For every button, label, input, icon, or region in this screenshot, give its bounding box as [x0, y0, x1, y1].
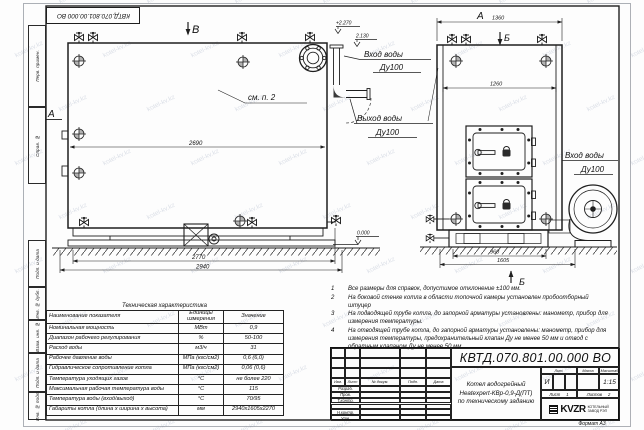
company-logo-text: KVZR [560, 404, 585, 415]
title-block-cell [360, 415, 400, 421]
lifting-point-icon [72, 54, 86, 68]
elevation-top: +2.270 [336, 21, 352, 27]
product-name-line3: по техническому заданию [458, 398, 534, 406]
valve-icon [80, 217, 89, 228]
note-item: 3На подводящей трубе котла, до запорной … [331, 311, 616, 327]
sheet-number-cell: Лист 1 [541, 390, 577, 398]
title-block-cell [426, 348, 451, 358]
doc-number-stamp-text: КВТД.070.801.00.000 ВО [57, 12, 130, 19]
title-block-cell: Лист [345, 378, 360, 386]
dim-2690: 2690 [188, 141, 203, 147]
note-item: 2На боковой стенке котла в области топоч… [331, 295, 616, 311]
inlet-label-mid: Вход воды [364, 50, 403, 59]
table-row: Номинальная мощностьМВт0,9 [47, 324, 284, 334]
table-header-row: Наименование показателяЕдиницы измерения… [47, 311, 284, 324]
table-row: Расход водым3/ч31 [47, 344, 284, 354]
lifting-point-icon [72, 166, 86, 180]
elevation-zero: 0.000 [357, 231, 370, 237]
company-name: КОТЕЛЬНЫЙ ЗАВОД РЭП [588, 406, 612, 414]
see-note-label: см. п. 2 [248, 93, 276, 102]
table-row: Температура воды (вход/выход)°С70/95 [47, 395, 284, 405]
table-cell: Диапазон рабочего регулирования [47, 334, 179, 344]
title-block-cell [331, 358, 345, 368]
title-block-cell [426, 415, 451, 421]
column-header: Наименование показателя [47, 311, 179, 324]
furnace-door-upper [466, 126, 536, 177]
company-cell: KVZR КОТЕЛЬНЫЙ ЗАВОД РЭП [541, 398, 620, 421]
inlet-label-right: Вход воды [565, 151, 604, 160]
table-row: Гидравлическое сопротивление котлаМПа (к… [47, 364, 284, 374]
furnace-door-lower [466, 179, 536, 230]
elevation-pipe: 2.130 [355, 34, 369, 40]
lifting-point-icon [539, 212, 553, 226]
title-block-cell [345, 348, 360, 358]
title-block-cell: Изм. [331, 378, 345, 386]
lifting-point-icon [449, 212, 463, 226]
note-number: 1 [331, 286, 348, 294]
table-cell: °С [179, 385, 224, 395]
table-row: Температура уходящих газов°Сне более 220 [47, 374, 284, 384]
note-number: 3 [331, 311, 348, 327]
valve-icon [462, 34, 471, 45]
section-label-b-top: Б [504, 33, 510, 43]
product-name-line1: Котел водогрейный [467, 381, 526, 389]
valve-icon [426, 215, 434, 224]
note-number: 2 [331, 295, 348, 311]
section-label-b: В [192, 24, 199, 36]
table-cell: Габариты котла (длина х ширина х высота) [47, 405, 179, 415]
table-cell: Максимальная рабочая температура воды [47, 385, 179, 395]
dim-1605: 1605 [497, 258, 510, 264]
scale-header: Масштаб [599, 367, 620, 374]
title-block-cell: Утв. [331, 415, 360, 421]
table-cell: Температура воды (вход/выход) [47, 395, 179, 405]
title-block-cell: Дата [426, 378, 451, 386]
title-block-cell [426, 358, 451, 368]
note-text: На боковой стенке котла в области топочн… [348, 295, 610, 311]
section-label-a: А [47, 109, 55, 120]
table-cell: 31 [224, 344, 284, 354]
table-cell: °С [179, 395, 224, 405]
table-cell: Номинальная мощность [47, 324, 179, 334]
table-cell: МПа (кгс/см2) [179, 364, 224, 374]
valve-icon [306, 32, 315, 43]
table-cell: Температура уходящих газов [47, 374, 179, 384]
title-block-cell: № докум. [360, 378, 400, 386]
doc-number-stamp: КВТД.070.801.00.000 ВО [46, 7, 140, 24]
spec-table-grid: Наименование показателяЕдиницы измерения… [46, 310, 284, 416]
ground-left [52, 248, 380, 256]
title-block-cell [360, 358, 400, 368]
margin-box: Справ. № [28, 107, 46, 184]
table-cell: Рабочее давление воды [47, 354, 179, 364]
format-label: Формат А3 [552, 421, 632, 427]
lit-cell-3 [565, 374, 577, 390]
table-cell: 50-100 [224, 334, 284, 344]
table-cell: % [179, 334, 224, 344]
title-block-cell [360, 348, 400, 358]
table-cell: 2940х1605х2270 [224, 405, 284, 415]
table-row: Рабочее давление водыМПа (кгс/см2)0,6 (6… [47, 354, 284, 364]
section-mark-b-top [498, 32, 503, 46]
view-label-a: А [476, 11, 484, 22]
valve-icon [332, 215, 341, 226]
inlet-dn-mid: Ду100 [379, 63, 404, 72]
spec-table-title: Техническая характеристика [46, 303, 283, 309]
doc-number: КВТД.070.801.00.000 ВО [451, 348, 620, 367]
title-block-cell [345, 368, 360, 378]
note-text: На подводящей трубе котла, до запорной а… [348, 311, 610, 327]
margin-box: Инв. № подл. [28, 392, 46, 420]
table-cell: м3/ч [179, 344, 224, 354]
valve-icon [89, 32, 98, 43]
table-cell: Гидравлическое сопротивление котла [47, 364, 179, 374]
sheet-label: Лист [549, 392, 560, 397]
note-item: 1Все размеры для справок, допустимое отк… [331, 286, 616, 294]
dim-1360: 1360 [492, 16, 505, 22]
title-block-cell [345, 358, 360, 368]
spec-table: Техническая характеристика Наименование … [46, 303, 283, 416]
title-block-cell: Подп. [400, 378, 426, 386]
sheets-value: 2 [608, 392, 610, 397]
lifting-point-icon [233, 214, 247, 228]
lifting-point-icon [449, 54, 463, 68]
table-cell: 0,9 [224, 324, 284, 334]
outlet-dn: Ду100 [375, 128, 400, 137]
lifting-point-icon [236, 55, 250, 69]
product-name: Котел водогрейный Heatexpert-КВр-0,9-Д(П… [451, 367, 541, 421]
table-cell: мм [179, 405, 224, 415]
valve-icon [538, 34, 547, 45]
company-name-line2: ЗАВОД РЭП [588, 409, 607, 413]
fan-blower [569, 185, 617, 247]
valve-icon [248, 217, 257, 228]
scale-value: 1:15 [599, 374, 620, 390]
lifting-point-icon [72, 127, 86, 141]
ground-right [420, 247, 617, 255]
table-cell: Расход воды [47, 344, 179, 354]
dim-2940: 2940 [195, 265, 210, 271]
title-block-cell [426, 368, 451, 378]
sheet-value: 1 [566, 392, 568, 397]
drawing-sheet: kotel-kv.kzkotel-kv.kzkotel-kv.kzkotel-k… [0, 0, 644, 430]
table-row: Максимальная рабочая температура воды°С1… [47, 385, 284, 395]
table-cell: не более 220 [224, 374, 284, 384]
table-cell: 70/95 [224, 395, 284, 405]
valve-icon [448, 34, 457, 45]
side-view [62, 32, 341, 246]
front-view [426, 34, 570, 247]
valve-icon [238, 32, 247, 43]
margin-box: Взам. инв. № [28, 320, 46, 353]
table-row: Диапазон рабочего регулирования%50-100 [47, 334, 284, 344]
frame-margin-column: Перв. примен.Справ. №Подп. и датаИнв. № … [28, 0, 46, 430]
table-cell: 115 [224, 385, 284, 395]
table-cell: 0,06 (0,6) [224, 364, 284, 374]
table-cell: МПа (кгс/см2) [179, 354, 224, 364]
notes-list: 1Все размеры для справок, допустимое отк… [331, 286, 616, 352]
lit-cell-2 [553, 374, 565, 390]
title-block-cell [331, 348, 345, 358]
company-logo-icon [549, 405, 558, 414]
valve-icon [426, 234, 434, 243]
lifting-point-icon [539, 54, 553, 68]
section-mark-b-bottom [509, 271, 514, 284]
title-block-cell [360, 368, 400, 378]
lit-header: Лит. [541, 367, 577, 374]
table-cell: МВт [179, 324, 224, 334]
title-block-cell [400, 348, 426, 358]
title-block-cell [400, 358, 426, 368]
margin-box: Подп. и дата [28, 240, 46, 287]
section-mark-b [186, 22, 191, 36]
mass-header: Масса [577, 367, 599, 374]
margin-box: Подп. и дата [28, 353, 46, 392]
sheets-total-cell: Листов 2 [577, 390, 620, 398]
column-header: Единицы измерения [179, 311, 224, 324]
lit-value: И [541, 374, 553, 390]
dim-1260: 1260 [490, 82, 503, 88]
note-text: Все размеры для справок, допустимое откл… [348, 286, 610, 294]
margin-box: Инв. № дубл. [28, 287, 46, 320]
title-block-cell [400, 415, 426, 421]
outlet-label: Выход воды [357, 114, 402, 123]
sheets-label: Листов [587, 392, 602, 397]
title-block: Изм.Лист№ докум.Подп.ДатаРазраб.Пров.Т.к… [330, 347, 619, 420]
margin-box: Перв. примен. [28, 25, 46, 107]
title-block-cell [331, 368, 345, 378]
valve-icon [75, 32, 84, 43]
column-header: Значение [224, 311, 284, 324]
product-name-line2: Heatexpert-КВр-0,9-Д(ПТ) [459, 390, 532, 398]
table-row: Габариты котла (длина х ширина х высота)… [47, 405, 284, 415]
title-block-cell [400, 368, 426, 378]
dim-960: 960 [490, 250, 500, 256]
dim-2770: 2770 [191, 255, 206, 261]
mass-value [577, 374, 599, 390]
inlet-dn-right: Ду100 [580, 165, 605, 174]
inlet-flange-end [300, 45, 327, 72]
table-cell: °С [179, 374, 224, 384]
table-cell: 0,6 (6,0) [224, 354, 284, 364]
